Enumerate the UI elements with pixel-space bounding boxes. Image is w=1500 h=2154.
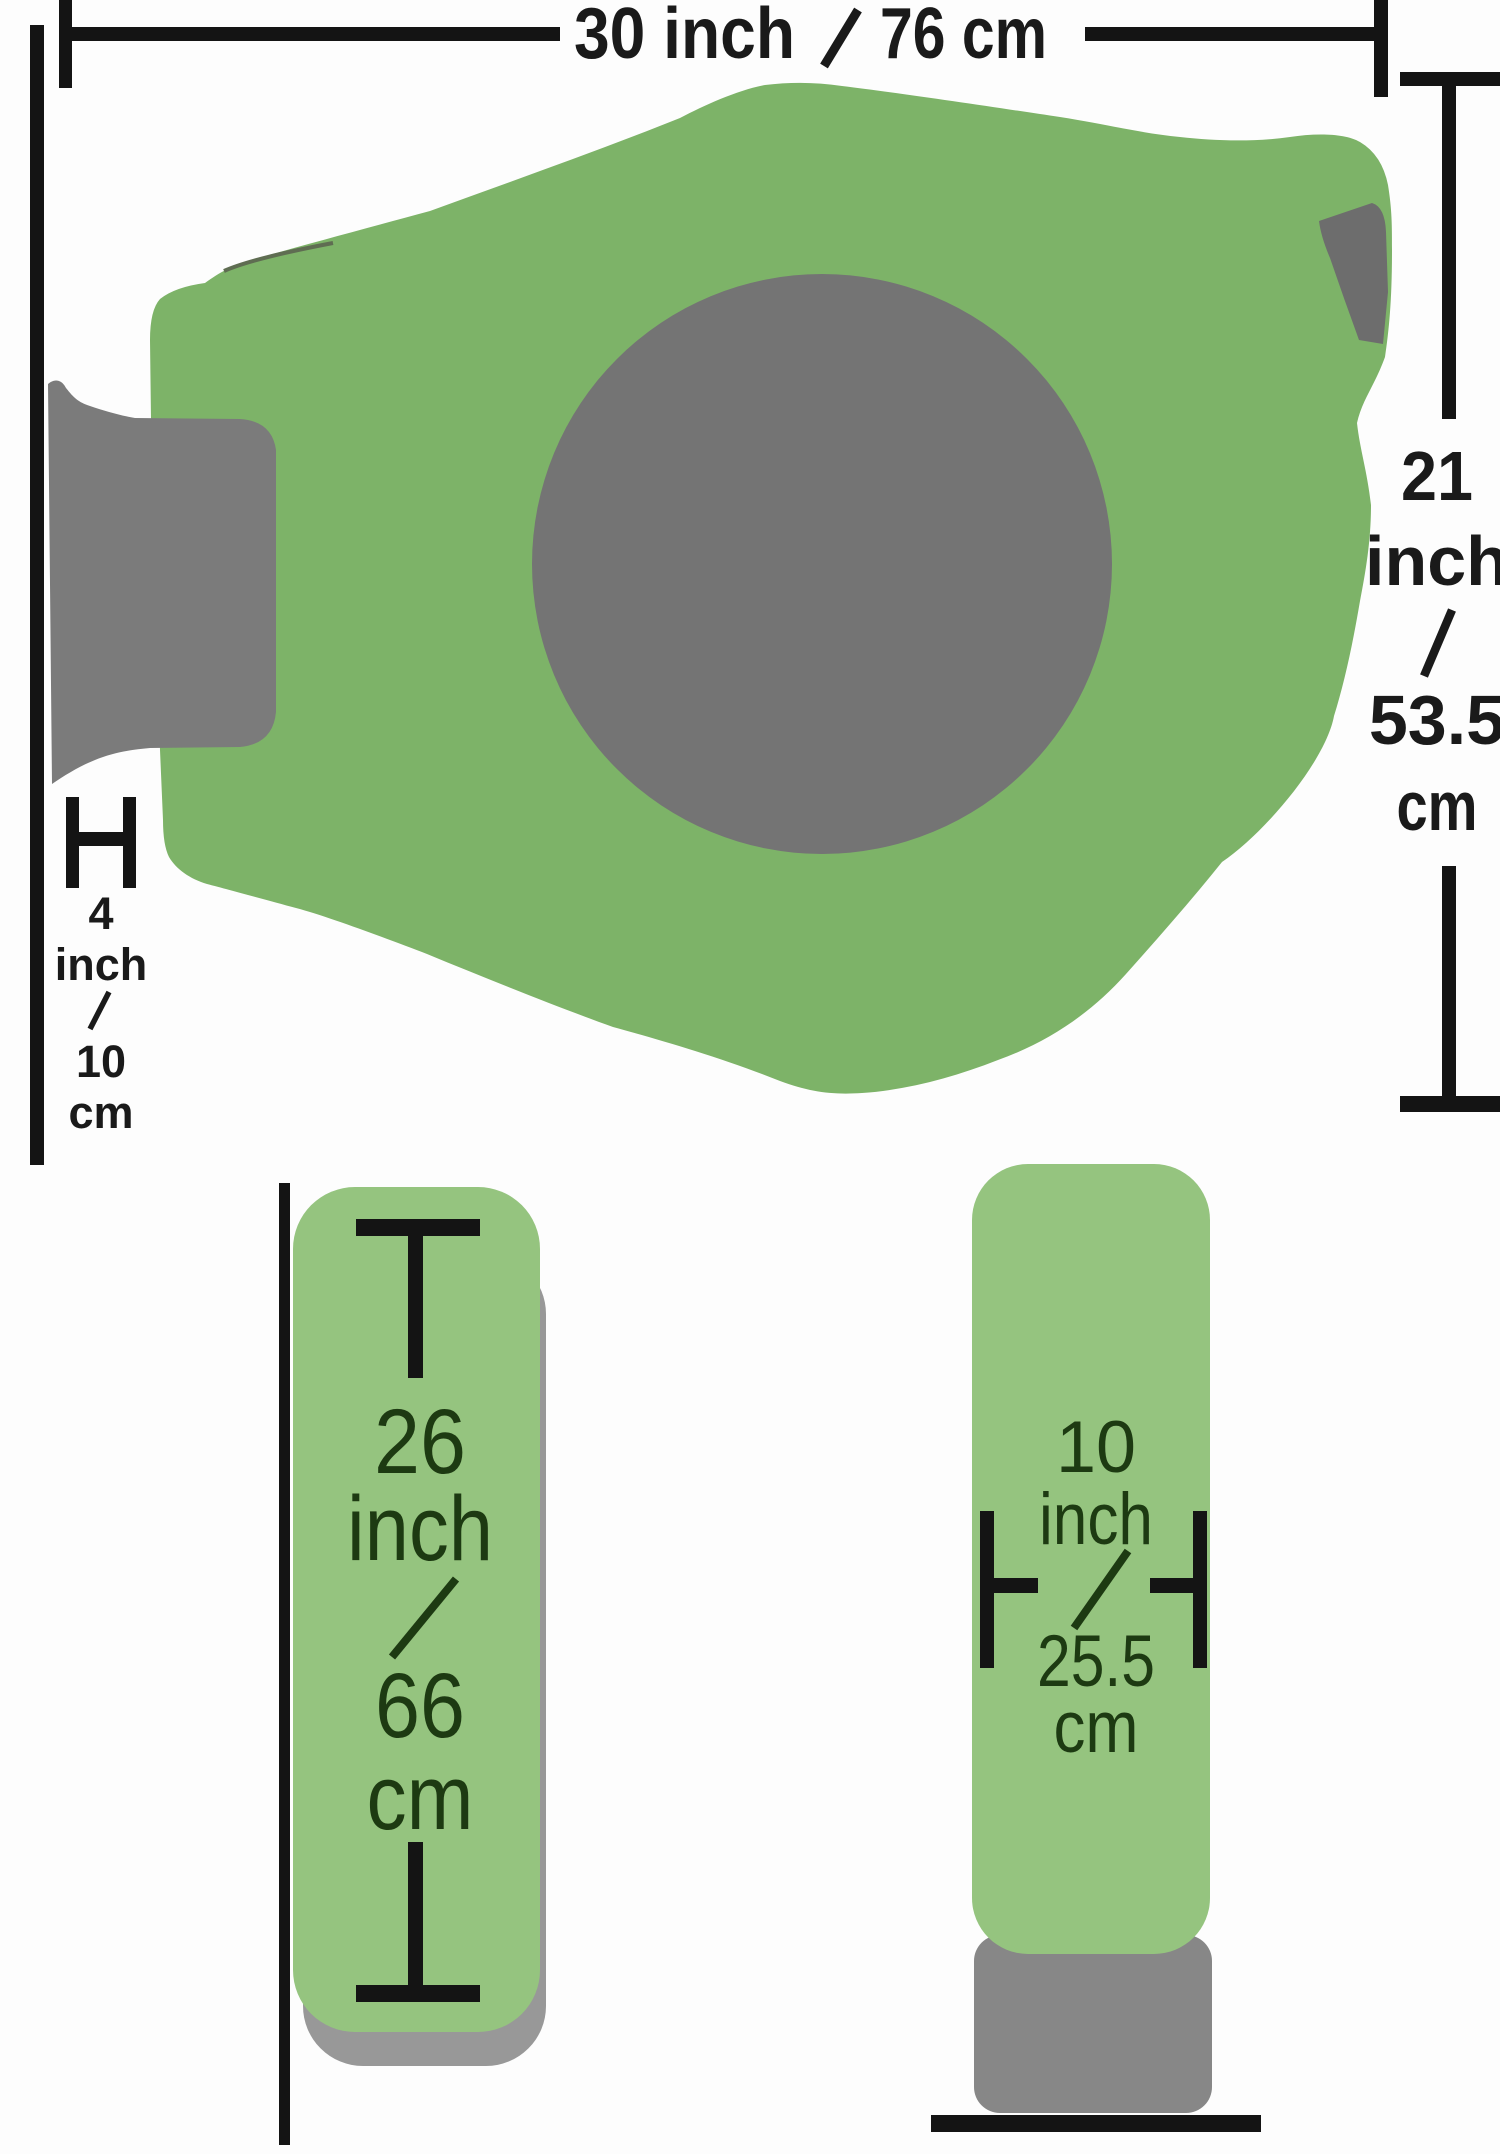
svg-text:cm: cm — [1397, 767, 1478, 845]
svg-text:cm: cm — [367, 1747, 474, 1849]
svg-text:inch: inch — [55, 939, 148, 990]
svg-text:53.5: 53.5 — [1369, 681, 1500, 759]
svg-text:inch: inch — [1039, 1479, 1153, 1560]
svg-text:cm: cm — [1054, 1687, 1139, 1768]
svg-text:cm: cm — [68, 1087, 133, 1138]
svg-text:76 cm: 76 cm — [880, 0, 1047, 74]
svg-text:inch: inch — [347, 1478, 493, 1580]
svg-text:30 inch: 30 inch — [574, 0, 795, 74]
svg-text:4: 4 — [88, 888, 113, 939]
svg-text:10: 10 — [76, 1036, 126, 1087]
svg-text:66: 66 — [375, 1655, 465, 1757]
svg-text:21: 21 — [1401, 437, 1473, 515]
svg-text:10: 10 — [1056, 1407, 1136, 1488]
svg-text:inch: inch — [1365, 522, 1500, 600]
